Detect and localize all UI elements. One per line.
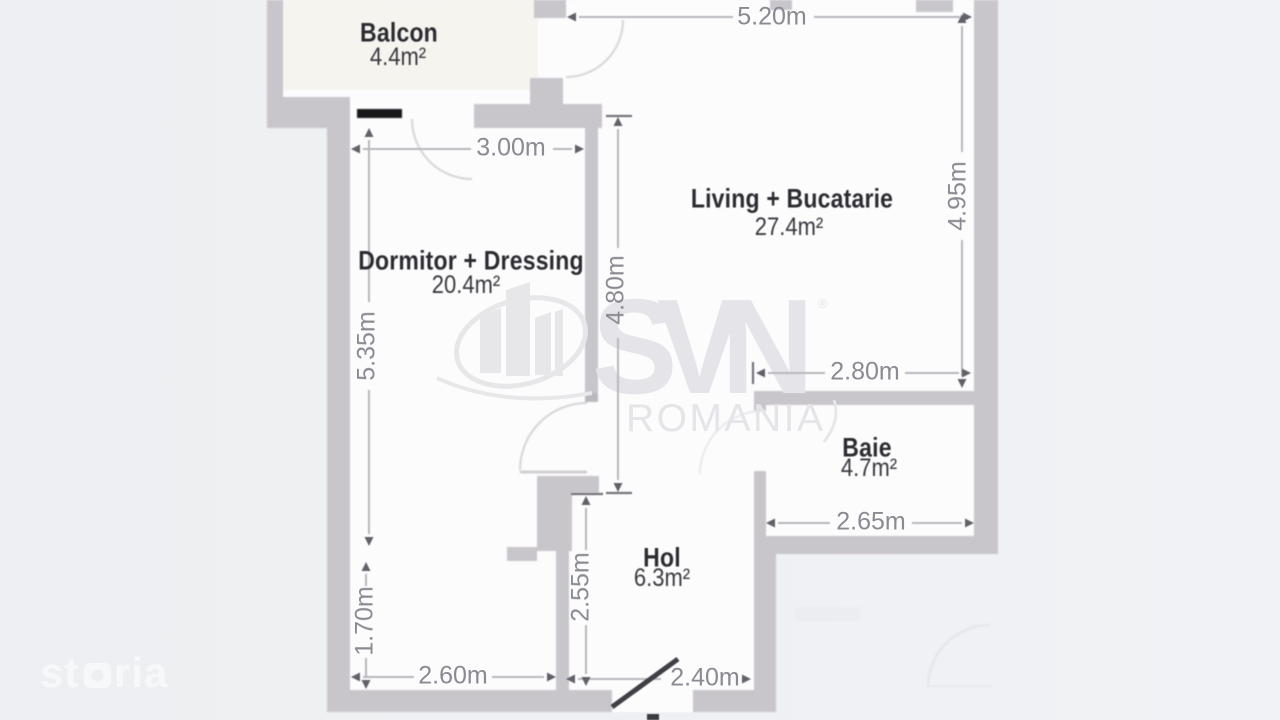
svg-text:st: st [40, 649, 79, 695]
svg-text:ria: ria [114, 649, 168, 695]
